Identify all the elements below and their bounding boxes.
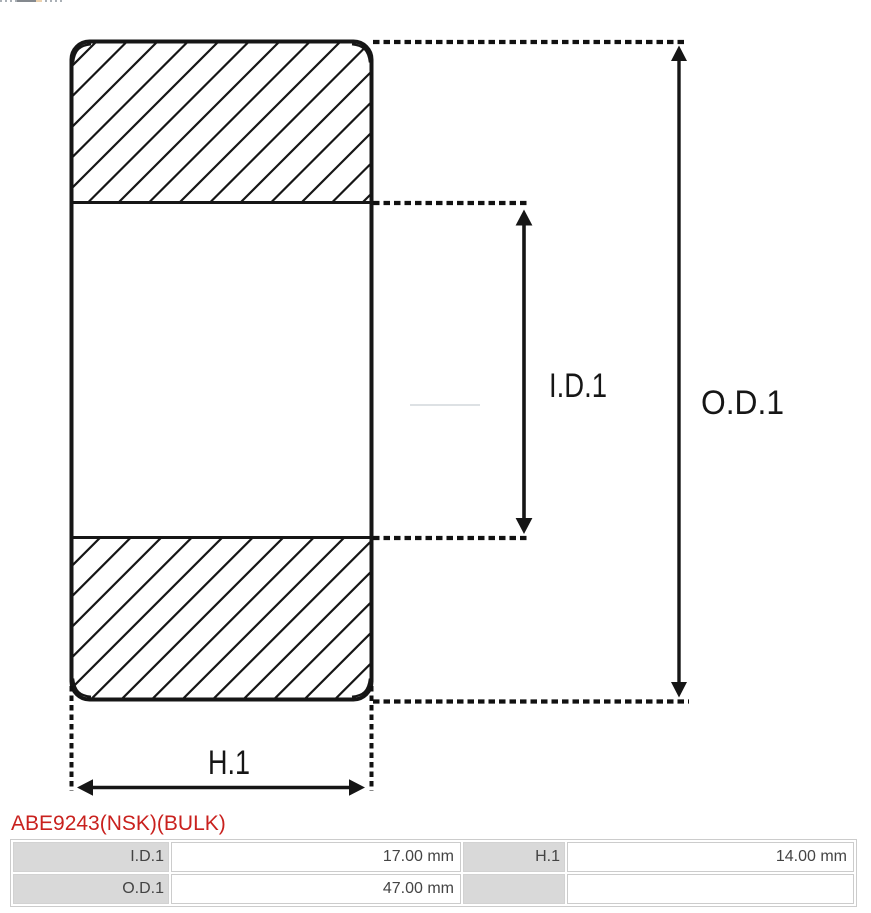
- svg-text:I.D.1: I.D.1: [549, 367, 607, 405]
- svg-text:H.1: H.1: [208, 744, 250, 782]
- svg-text:O.D.1: O.D.1: [701, 384, 784, 422]
